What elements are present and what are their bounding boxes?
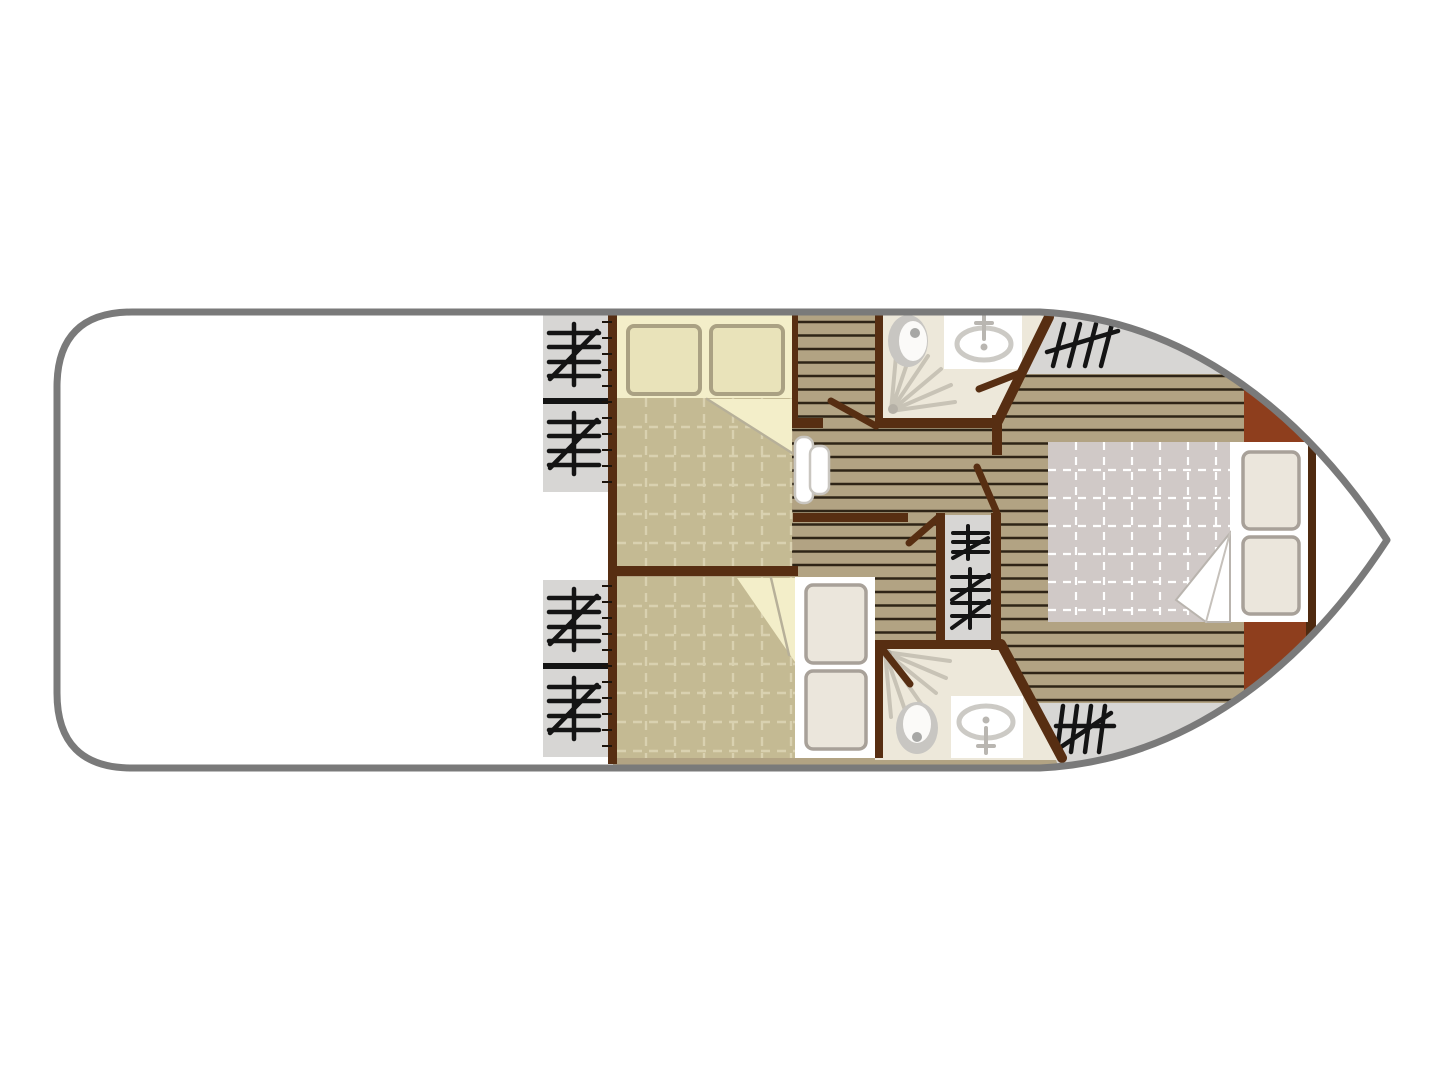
- bow-pillow-2: [1243, 537, 1299, 614]
- stbd-cabin-pillow-2: [806, 671, 866, 749]
- bow-pillow-1: [1243, 452, 1299, 529]
- port-cabin-pillow-1: [628, 326, 700, 394]
- port-bathroom-left-wall: [875, 310, 883, 428]
- bow-void: [1314, 330, 1424, 750]
- stbd-sink-drain-icon: [983, 717, 990, 724]
- stbd-toilet-icon-flush: [912, 732, 922, 742]
- port-sink-drain-icon: [981, 344, 988, 351]
- port-cabin-pillow-2: [711, 326, 783, 394]
- port-shower-drain-icon: [888, 404, 898, 414]
- port-toilet-icon-bowl: [899, 321, 927, 361]
- aft-bulkhead-wall: [608, 310, 617, 764]
- port-toilet-icon-flush: [910, 328, 920, 338]
- stbd-bathroom-top-wall: [875, 640, 997, 649]
- corridor-top-wall-b: [883, 418, 1002, 428]
- side-steps-divider-2: [543, 663, 608, 669]
- bow-locker-bottom: [1244, 621, 1308, 733]
- interior: [57, 283, 1424, 800]
- companionway-left-wall: [936, 513, 945, 646]
- corridor-bottom-wall: [793, 513, 908, 522]
- corridor-seat: [810, 446, 829, 494]
- companionway-right-wall-b: [991, 513, 1001, 650]
- boat-floor-plan: [0, 0, 1441, 1080]
- aft-open-deck: [57, 308, 613, 772]
- side-steps-divider-1: [543, 398, 608, 404]
- floor-plan-svg: [0, 0, 1441, 1080]
- stbd-bathroom-left-wall: [875, 641, 883, 758]
- cabin-divider-wall: [608, 566, 798, 576]
- corridor-top-wall-a: [792, 418, 823, 428]
- stbd-cabin-pillow-1: [806, 585, 866, 663]
- port-cabin-right-wall: [792, 310, 798, 428]
